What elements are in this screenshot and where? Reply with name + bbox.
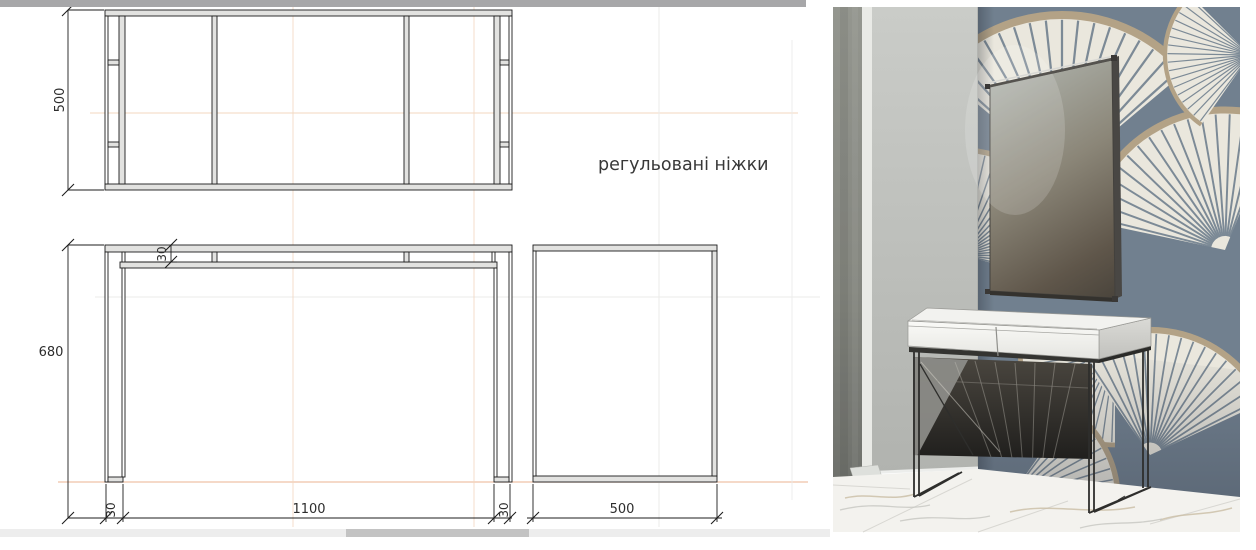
design-canvas: 500 bbox=[0, 0, 1256, 550]
front-view: 680 30 bbox=[39, 239, 516, 524]
wall-corner-trim bbox=[862, 7, 872, 474]
side-view: 500 bbox=[527, 245, 723, 524]
dimension-front-width: 30 1100 30 bbox=[68, 484, 516, 524]
dimension-label: 500 bbox=[53, 88, 68, 113]
dimension-plan-depth: 500 bbox=[53, 4, 104, 196]
dimension-side-depth: 500 bbox=[527, 484, 723, 524]
dimension-front-height: 680 bbox=[39, 239, 104, 524]
dimension-label: 500 bbox=[610, 502, 635, 517]
dimension-label: 1100 bbox=[292, 502, 325, 517]
front-right-leg bbox=[509, 252, 512, 482]
window-top-edge bbox=[0, 0, 806, 7]
plan-divider-left bbox=[212, 16, 217, 184]
front-apron-profile bbox=[120, 262, 497, 268]
plan-view: 500 bbox=[53, 4, 512, 196]
dimension-label: 30 bbox=[155, 246, 169, 261]
adjustable-legs-annotation: регульовані ніжки bbox=[598, 155, 769, 175]
scrollbar-thumb[interactable] bbox=[346, 529, 529, 537]
plan-right-leg-profile bbox=[494, 16, 500, 184]
drawing-lines: 500 bbox=[39, 4, 723, 524]
dimension-label: 680 bbox=[39, 345, 64, 360]
dimension-label: 30 bbox=[497, 502, 511, 517]
dimension-label: 30 bbox=[104, 502, 118, 517]
horizontal-scrollbar[interactable] bbox=[0, 529, 830, 537]
drawing-pane: 500 bbox=[39, 3, 820, 527]
front-right-foot bbox=[494, 477, 509, 482]
render-pane bbox=[833, 0, 1256, 550]
plan-divider-right bbox=[404, 16, 409, 184]
front-left-leg bbox=[105, 252, 108, 482]
furniture-design-workspace: 500 bbox=[0, 0, 1256, 550]
front-left-foot bbox=[108, 477, 123, 482]
plan-left-leg-profile bbox=[119, 16, 125, 184]
